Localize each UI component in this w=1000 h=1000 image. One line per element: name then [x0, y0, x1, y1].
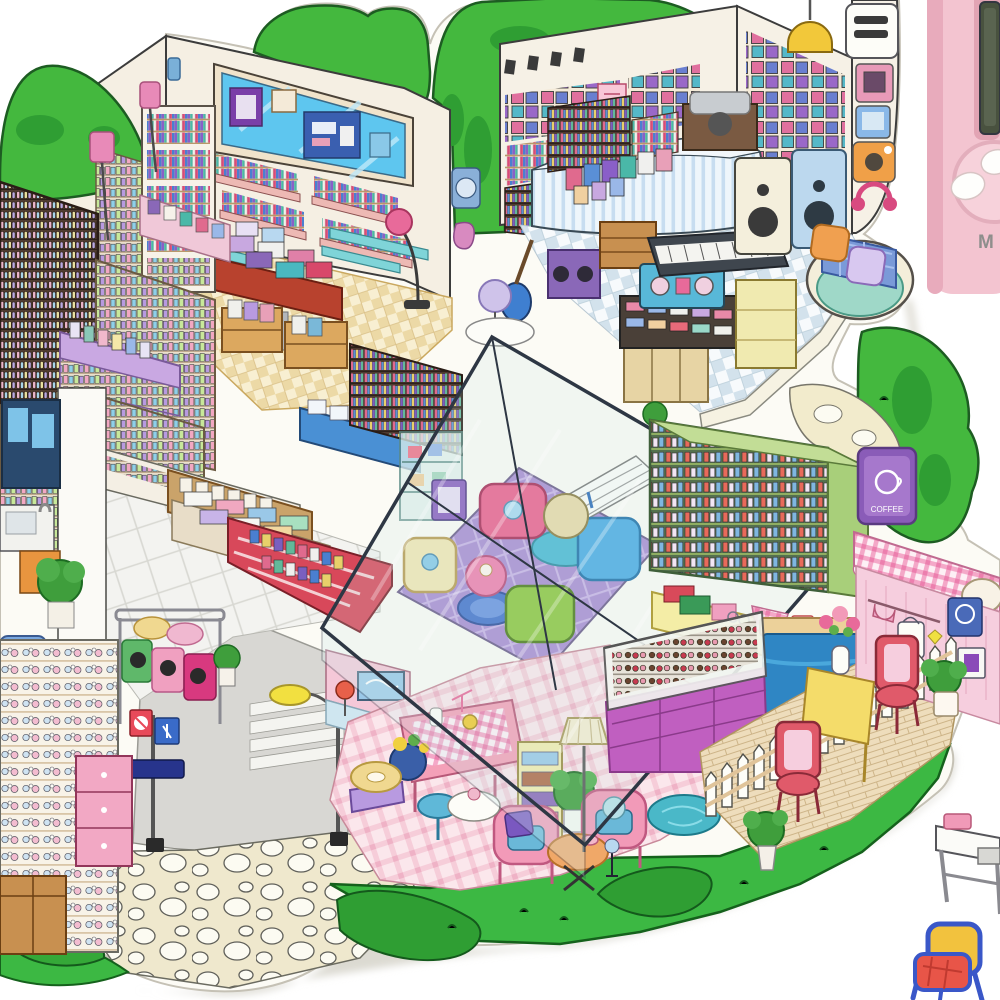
svg-text:M: M: [978, 232, 994, 253]
svg-text:COFFEE: COFFEE: [871, 505, 903, 514]
